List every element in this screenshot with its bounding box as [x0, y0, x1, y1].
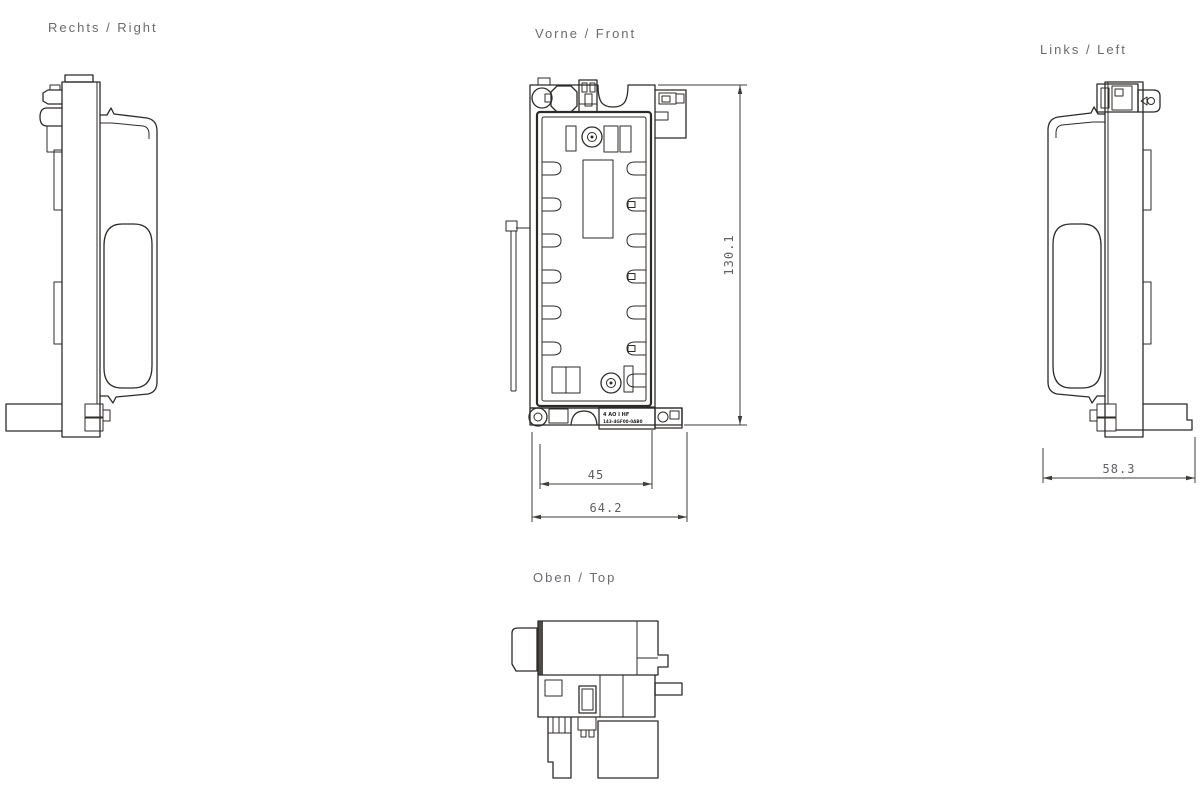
front-view-label: Vorne / Front — [535, 26, 636, 41]
dimension-height-value: 130.1 — [722, 234, 736, 275]
front-view-drawing: 4 AO I HF 143-4GF00-0AB0 — [506, 78, 686, 429]
front-left-tabs — [542, 162, 561, 355]
technical-drawing-page: Rechts / Right Vorne / Front Links / Lef… — [0, 0, 1200, 800]
top-view-label: Oben / Top — [533, 570, 616, 585]
dimension-inner-width-value: 45 — [588, 468, 604, 482]
dimension-overall-width-value: 64.2 — [590, 501, 623, 515]
module-type-label: 4 AO I HF — [603, 412, 629, 418]
right-view-drawing — [6, 75, 157, 437]
top-view-drawing — [512, 621, 682, 778]
dimension-depth-value: 58.3 — [1103, 462, 1136, 476]
module-order-number: 143-4GF00-0AB0 — [603, 419, 643, 424]
left-view-label: Links / Left — [1040, 42, 1127, 57]
front-right-tabs — [627, 162, 646, 387]
left-view-drawing — [1048, 82, 1192, 437]
drawing-canvas: Rechts / Right Vorne / Front Links / Lef… — [0, 0, 1200, 800]
left-dimensions: 58.3 — [1043, 437, 1195, 483]
right-view-label: Rechts / Right — [48, 20, 158, 35]
front-dimensions: 130.1 45 64.2 — [532, 85, 747, 522]
